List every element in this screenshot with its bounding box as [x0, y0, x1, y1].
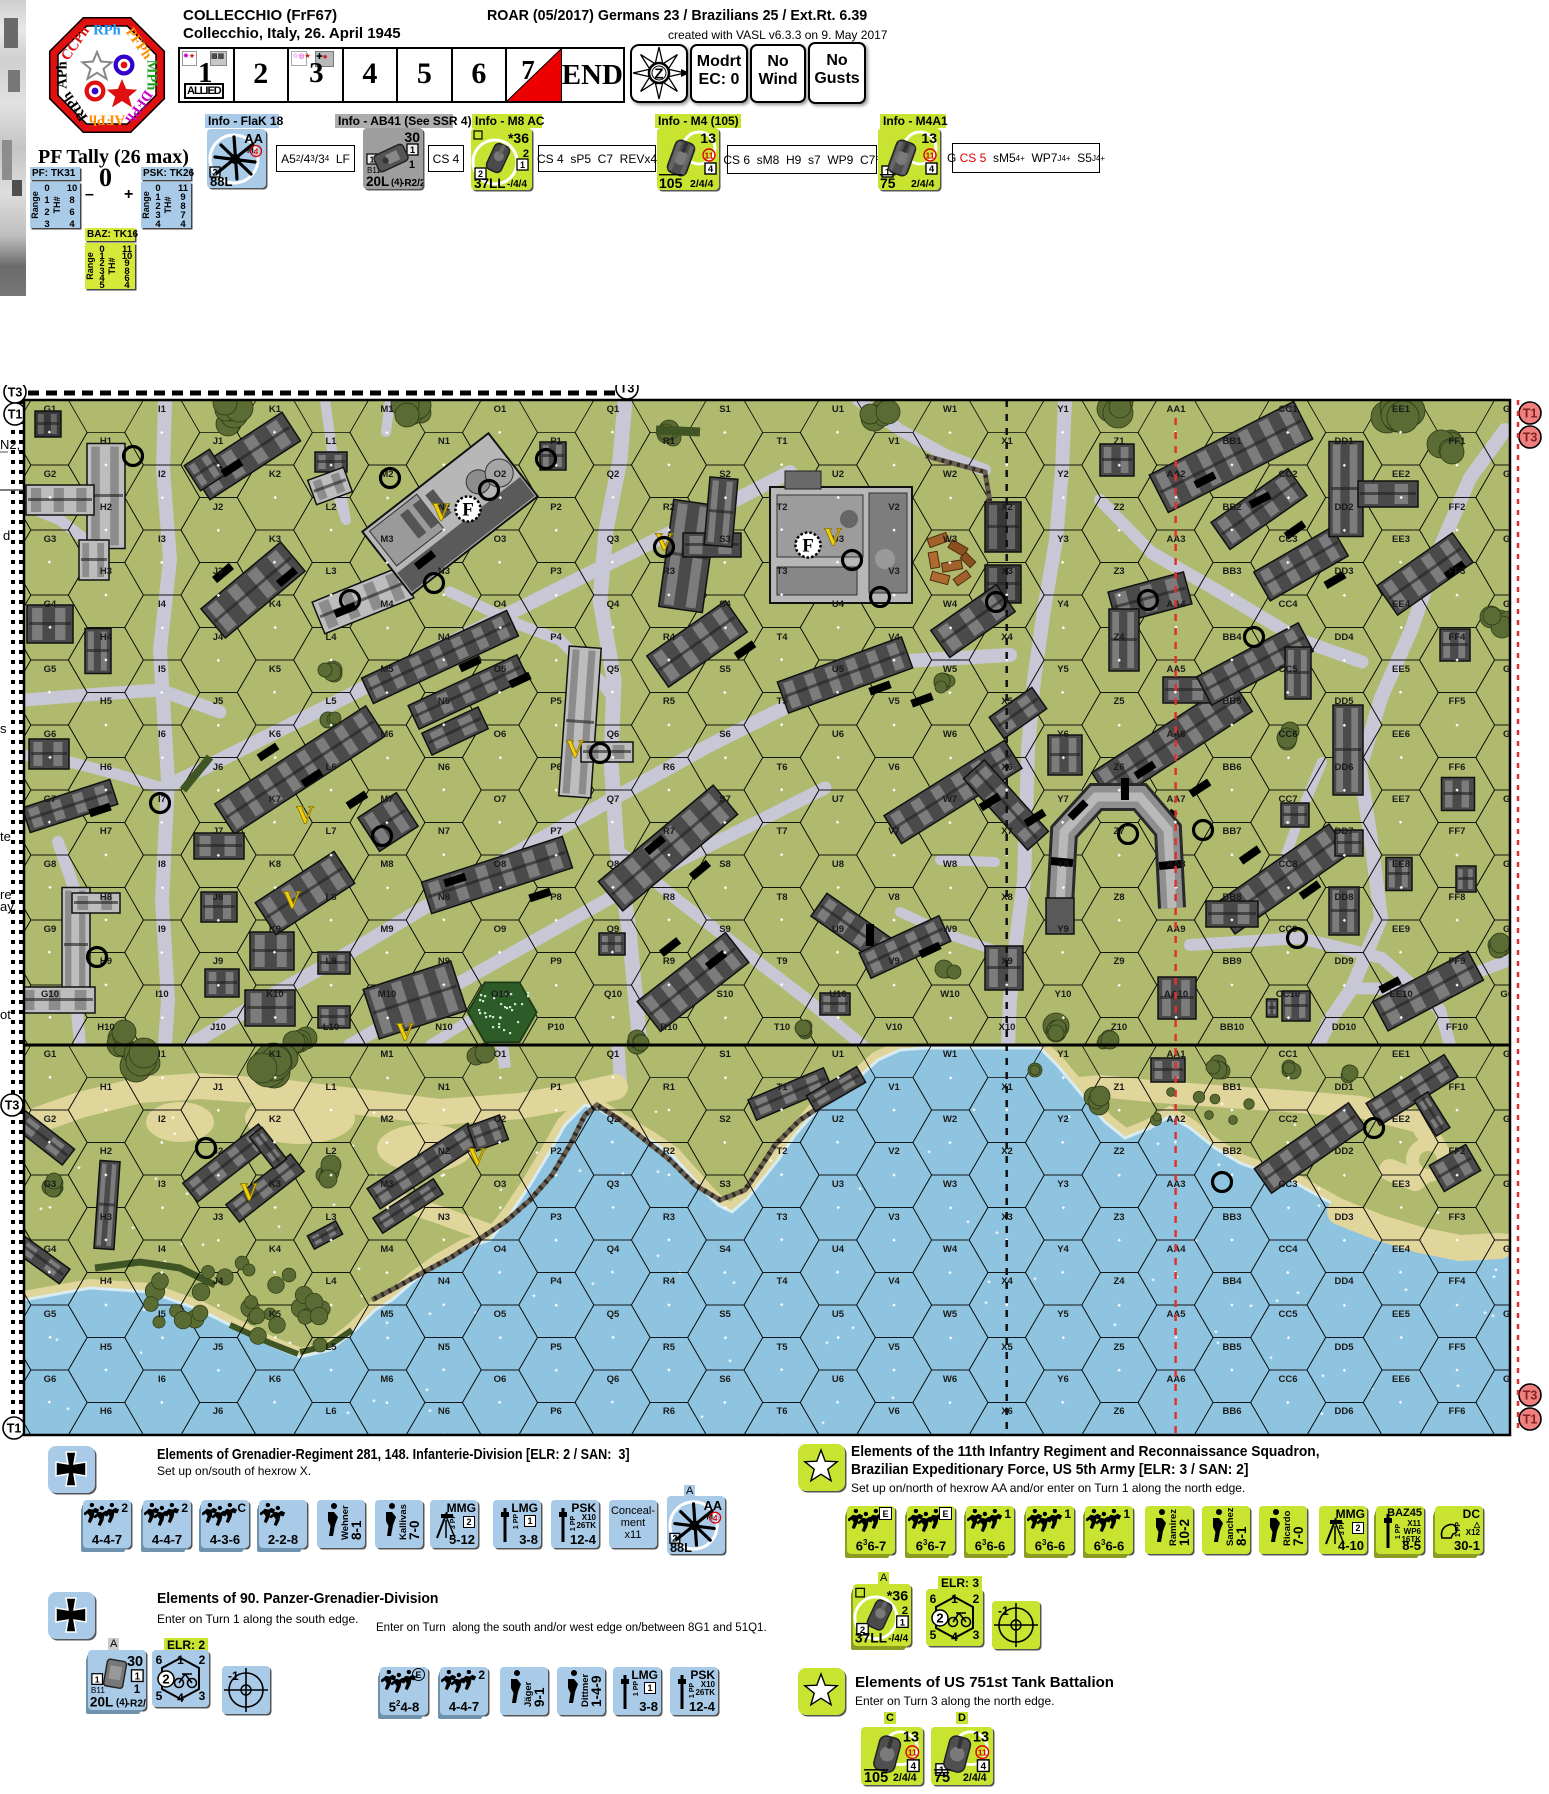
svg-text:O6: O6	[494, 1374, 507, 1385]
svg-text:S4: S4	[719, 1244, 731, 1255]
svg-text:M6: M6	[380, 1374, 393, 1385]
svg-text:S1: S1	[719, 1049, 731, 1060]
svg-text:T2: T2	[776, 502, 787, 513]
svg-text:BB6: BB6	[1222, 1406, 1241, 1417]
svg-text:DD6: DD6	[1334, 1406, 1353, 1417]
svg-text:CC3: CC3	[1278, 1179, 1297, 1190]
svg-text:P5: P5	[550, 1342, 562, 1353]
svg-text:O3: O3	[494, 1179, 507, 1190]
svg-text:M4: M4	[380, 1244, 394, 1255]
svg-text:EE10: EE10	[1389, 989, 1412, 1000]
svg-text:2/4/4: 2/4/4	[963, 1772, 987, 1784]
svg-text:W5: W5	[943, 1309, 958, 1320]
svg-text:DD9: DD9	[1334, 956, 1353, 967]
svg-text:R5: R5	[663, 696, 676, 707]
svg-text:Q8: Q8	[607, 859, 620, 870]
svg-text:Y5: Y5	[1057, 1309, 1069, 1320]
svg-text:Y10: Y10	[1055, 989, 1072, 1000]
svg-text:CC6: CC6	[1278, 1374, 1297, 1385]
svg-text:GG10: GG10	[1500, 989, 1525, 1000]
svg-text:Range: Range	[30, 191, 40, 219]
svg-text:Z1: Z1	[1113, 436, 1125, 447]
svg-text:EE6: EE6	[1392, 1374, 1410, 1385]
svg-text:S2: S2	[719, 469, 731, 480]
svg-text:BB7: BB7	[1222, 826, 1241, 837]
svg-text:K4: K4	[269, 599, 282, 610]
svg-text:V5: V5	[888, 1342, 900, 1353]
svg-text:O2: O2	[494, 1114, 507, 1125]
svg-text:CC1: CC1	[1278, 404, 1298, 415]
svg-text:P9: P9	[550, 956, 562, 967]
svg-text:G4: G4	[44, 1244, 57, 1255]
svg-text:Z3: Z3	[1113, 1212, 1124, 1223]
svg-text:2: 2	[936, 1611, 943, 1626]
svg-text:R1: R1	[663, 1082, 676, 1093]
svg-text:EE8: EE8	[1392, 859, 1410, 870]
svg-text:I1: I1	[158, 1049, 167, 1060]
svg-text:BB5: BB5	[1222, 1342, 1242, 1353]
svg-text:30: 30	[404, 129, 420, 145]
svg-text:J4: J4	[213, 1276, 224, 1287]
svg-text:FF10: FF10	[1446, 1022, 1468, 1033]
svg-text:DD2: DD2	[1334, 1146, 1353, 1157]
svg-text:G5: G5	[44, 1309, 57, 1320]
svg-text:U2: U2	[832, 1114, 844, 1125]
svg-text:G2: G2	[44, 469, 57, 480]
svg-text:J1: J1	[213, 1082, 224, 1093]
svg-text:S6: S6	[719, 1374, 731, 1385]
svg-text:2: 2	[902, 1605, 908, 1617]
svg-text:R6: R6	[663, 1406, 675, 1417]
svg-text:W6: W6	[943, 729, 957, 740]
svg-text:T1: T1	[776, 1082, 788, 1093]
svg-text:H2: H2	[100, 1146, 112, 1157]
svg-text:W2: W2	[943, 469, 957, 480]
svg-text:K1: K1	[269, 404, 282, 415]
svg-text:DD2: DD2	[1334, 502, 1353, 513]
svg-text:DD3: DD3	[1334, 1212, 1353, 1223]
svg-text:W1: W1	[943, 404, 958, 415]
svg-text:G2: G2	[44, 1114, 57, 1125]
svg-text:88L: 88L	[670, 1540, 692, 1554]
svg-text:L1: L1	[325, 436, 337, 447]
svg-text:11: 11	[978, 1748, 987, 1758]
svg-text:2/4/4: 2/4/4	[690, 178, 714, 190]
svg-text:CC2: CC2	[1278, 469, 1297, 480]
svg-text:BB4: BB4	[1222, 632, 1242, 643]
svg-text:1: 1	[409, 159, 415, 171]
svg-text:L10: L10	[323, 1022, 339, 1033]
svg-text:K2: K2	[269, 469, 281, 480]
svg-text:T3: T3	[776, 1212, 787, 1223]
svg-text:MPh: MPh	[144, 60, 160, 91]
svg-text:P4: P4	[550, 1276, 562, 1287]
svg-text:BB3: BB3	[1222, 1212, 1241, 1223]
svg-text:M3: M3	[380, 1179, 393, 1190]
svg-text:Z: Z	[654, 66, 663, 83]
svg-text:Z3: Z3	[1113, 566, 1124, 577]
svg-text:P7: P7	[550, 826, 562, 837]
svg-text:U10: U10	[829, 989, 846, 1000]
svg-text:Q7: Q7	[607, 794, 620, 805]
svg-text:CC5: CC5	[1278, 1309, 1298, 1320]
svg-text:L3: L3	[325, 566, 336, 577]
svg-text:R4: R4	[663, 1276, 676, 1287]
svg-text:DD5: DD5	[1334, 696, 1354, 707]
svg-text:Q6: Q6	[607, 729, 620, 740]
svg-text:H3: H3	[100, 1212, 112, 1223]
svg-text:Z4: Z4	[1113, 632, 1125, 643]
svg-text:Y4: Y4	[1057, 1244, 1069, 1255]
svg-text:V5: V5	[888, 696, 900, 707]
svg-text:1: 1	[44, 195, 50, 206]
svg-text:S10: S10	[717, 989, 734, 1000]
svg-text:4: 4	[708, 164, 714, 175]
svg-text:37LL: 37LL	[855, 1631, 887, 1646]
svg-text:FF6: FF6	[1449, 1406, 1466, 1417]
svg-text:2: 2	[199, 1653, 206, 1667]
svg-text:3: 3	[199, 1689, 206, 1703]
svg-text:N7: N7	[438, 826, 450, 837]
svg-text:I3: I3	[158, 1179, 166, 1190]
svg-text:Z1: Z1	[1113, 1082, 1125, 1093]
svg-text:K4: K4	[269, 1244, 282, 1255]
svg-text:W8: W8	[943, 859, 957, 870]
svg-text:Z9: Z9	[1113, 956, 1124, 967]
svg-text:6: 6	[69, 207, 74, 218]
svg-text:M3: M3	[380, 534, 393, 545]
svg-text:FF7: FF7	[1449, 826, 1466, 837]
svg-text:6: 6	[156, 1653, 163, 1667]
svg-text:CC10: CC10	[1276, 989, 1300, 1000]
svg-text:P3: P3	[550, 1212, 562, 1223]
svg-text:J5: J5	[213, 696, 224, 707]
svg-text:Q5: Q5	[607, 1309, 620, 1320]
svg-text:8: 8	[69, 195, 74, 206]
svg-text:Q5: Q5	[607, 664, 620, 675]
svg-text:5: 5	[930, 1628, 937, 1642]
svg-text:R10: R10	[660, 1022, 677, 1033]
svg-text:P3: P3	[550, 566, 562, 577]
svg-text:1: 1	[95, 1674, 100, 1684]
svg-text:BB10: BB10	[1220, 1022, 1244, 1033]
svg-text:AA: AA	[704, 1498, 722, 1513]
svg-text:EE1: EE1	[1392, 1049, 1411, 1060]
svg-text:T10: T10	[774, 1022, 790, 1033]
svg-text:I6: I6	[158, 1374, 166, 1385]
svg-text:K6: K6	[269, 729, 281, 740]
svg-text:S5: S5	[719, 664, 731, 675]
svg-text:4: 4	[910, 1762, 916, 1773]
svg-text:1: 1	[410, 145, 415, 155]
svg-text:J5: J5	[213, 1342, 224, 1353]
svg-text:J2: J2	[213, 502, 224, 513]
svg-text:Q1: Q1	[607, 404, 620, 415]
svg-text:GG5: GG5	[1503, 1309, 1524, 1320]
svg-text:1: 1	[900, 1617, 906, 1628]
svg-text:T1: T1	[776, 436, 788, 447]
svg-text:GG6: GG6	[1503, 729, 1523, 740]
svg-text:G5: G5	[44, 664, 57, 675]
svg-text:CC1: CC1	[1278, 1049, 1298, 1060]
svg-text:J3: J3	[213, 566, 224, 577]
svg-text:R4: R4	[663, 632, 676, 643]
svg-text:V6: V6	[888, 1406, 900, 1417]
svg-text:Q2: Q2	[607, 469, 620, 480]
svg-text:I8: I8	[158, 859, 166, 870]
svg-text:13: 13	[700, 130, 716, 146]
svg-text:DD5: DD5	[1334, 1342, 1354, 1353]
svg-text:1: 1	[134, 1683, 141, 1696]
svg-text:1: 1	[951, 1592, 958, 1606]
svg-text:Y1: Y1	[1057, 1049, 1069, 1060]
svg-text:Range: Range	[85, 252, 95, 280]
svg-text:G6: G6	[44, 1374, 57, 1385]
svg-text:H7: H7	[100, 826, 112, 837]
svg-text:W4: W4	[943, 599, 958, 610]
svg-text:T2: T2	[776, 1146, 787, 1157]
svg-text:Y9: Y9	[1057, 924, 1069, 935]
svg-text:te: te	[0, 829, 11, 844]
svg-text:Z4: Z4	[1113, 1276, 1125, 1287]
svg-text:S1: S1	[719, 404, 731, 415]
svg-text:H10: H10	[97, 1022, 114, 1033]
svg-text:10: 10	[67, 183, 78, 194]
svg-text:APh: APh	[54, 61, 70, 88]
svg-text:T4: T4	[776, 1276, 788, 1287]
svg-text:N2,: N2,	[0, 437, 20, 452]
svg-text:Q2: Q2	[607, 1114, 620, 1125]
svg-text:U2: U2	[832, 469, 844, 480]
svg-text:S6: S6	[719, 729, 731, 740]
svg-text:W2: W2	[943, 1114, 957, 1125]
svg-text:RPh: RPh	[93, 22, 120, 38]
svg-text:P8: P8	[550, 892, 562, 903]
svg-text:F: F	[802, 536, 814, 557]
svg-text:P6: P6	[550, 762, 562, 773]
svg-text:BB4: BB4	[1222, 1276, 1242, 1287]
svg-text:L8: L8	[325, 892, 336, 903]
svg-text:G9: G9	[44, 924, 57, 935]
svg-text:J4: J4	[213, 632, 224, 643]
svg-text:Y3: Y3	[1057, 534, 1069, 545]
svg-text:V4: V4	[888, 1276, 900, 1287]
svg-text:DD1: DD1	[1334, 1082, 1354, 1093]
svg-text:H4: H4	[100, 1276, 113, 1287]
svg-text:J6: J6	[213, 1406, 224, 1417]
svg-text:*36: *36	[508, 130, 529, 146]
svg-text:V1: V1	[888, 436, 900, 447]
svg-text:U4: U4	[832, 599, 845, 610]
svg-text:10-2: 10-2	[1177, 1519, 1192, 1546]
svg-text:U6: U6	[832, 1374, 844, 1385]
svg-text:S2: S2	[719, 1114, 731, 1125]
svg-text:W9: W9	[943, 924, 957, 935]
svg-text:EE5: EE5	[1392, 664, 1411, 675]
svg-text:T4: T4	[776, 632, 788, 643]
svg-text:T3: T3	[8, 386, 23, 400]
svg-text:R1: R1	[663, 436, 676, 447]
svg-text:N1: N1	[438, 1082, 451, 1093]
svg-text:9-1: 9-1	[532, 1687, 547, 1707]
svg-text:V: V	[566, 736, 584, 763]
svg-text:V6: V6	[888, 762, 900, 773]
svg-text:V: V	[396, 1019, 414, 1046]
svg-text:I4: I4	[158, 1244, 167, 1255]
svg-text:2: 2	[44, 207, 49, 218]
svg-text:U1: U1	[832, 404, 845, 415]
svg-text:-1: -1	[228, 1669, 239, 1683]
svg-text:U5: U5	[832, 1309, 845, 1320]
svg-text:K5: K5	[269, 1309, 282, 1320]
svg-text:Z8: Z8	[1113, 892, 1124, 903]
svg-text:*36: *36	[887, 1589, 908, 1605]
svg-text:d: d	[3, 528, 10, 543]
svg-text:G4: G4	[44, 599, 57, 610]
svg-text:R3: R3	[663, 1212, 675, 1223]
svg-text:P4: P4	[550, 632, 562, 643]
svg-text:V: V	[296, 802, 314, 829]
svg-text:O5: O5	[494, 1309, 507, 1320]
svg-text:V3: V3	[888, 566, 900, 577]
svg-text:TH#: TH#	[52, 196, 62, 213]
svg-text:V: V	[824, 524, 842, 551]
svg-text:R2: R2	[663, 1146, 675, 1157]
svg-text:T1: T1	[1523, 1413, 1538, 1427]
svg-text:Y4: Y4	[1057, 599, 1069, 610]
svg-text:M10: M10	[378, 989, 396, 1000]
svg-text:4: 4	[155, 219, 161, 228]
svg-text:O9: O9	[494, 924, 507, 935]
svg-text:1: 1	[177, 1653, 184, 1667]
svg-text:EE2: EE2	[1392, 469, 1410, 480]
svg-text:T3: T3	[1523, 1389, 1538, 1403]
svg-text:7-0: 7-0	[1291, 1526, 1306, 1546]
svg-text:W4: W4	[943, 1244, 958, 1255]
svg-text:FF3: FF3	[1449, 1212, 1466, 1223]
svg-text:U7: U7	[832, 794, 844, 805]
svg-text:T1: T1	[8, 408, 23, 422]
svg-text:H4: H4	[100, 632, 113, 643]
svg-text:V10: V10	[886, 1022, 903, 1033]
svg-text:V2: V2	[888, 1146, 900, 1157]
svg-text:N8: N8	[438, 892, 450, 903]
svg-text:FF4: FF4	[1449, 632, 1467, 643]
svg-text:U6: U6	[832, 729, 844, 740]
svg-text:P5: P5	[550, 696, 562, 707]
svg-text:G1: G1	[44, 404, 57, 415]
svg-text:FF2: FF2	[1449, 1146, 1466, 1157]
svg-text:3: 3	[973, 1628, 980, 1642]
svg-text:Y2: Y2	[1057, 469, 1069, 480]
svg-text:CC3: CC3	[1278, 534, 1297, 545]
svg-text:I5: I5	[158, 664, 167, 675]
svg-text:I2: I2	[158, 469, 166, 480]
svg-text:N4: N4	[438, 1276, 451, 1287]
svg-text:M1: M1	[380, 404, 394, 415]
svg-text:Q10: Q10	[604, 989, 622, 1000]
svg-text:S9: S9	[719, 924, 731, 935]
svg-text:R6: R6	[663, 762, 675, 773]
svg-text:O4: O4	[494, 599, 507, 610]
svg-text:J10: J10	[210, 1022, 226, 1033]
svg-text:R3: R3	[663, 566, 675, 577]
svg-text:GG9: GG9	[1503, 924, 1523, 935]
svg-text:EE7: EE7	[1392, 794, 1410, 805]
svg-text:V1: V1	[888, 1082, 900, 1093]
svg-text:T6: T6	[776, 762, 787, 773]
svg-text:20L: 20L	[366, 174, 389, 189]
svg-text:T9: T9	[776, 956, 787, 967]
svg-text:H6: H6	[100, 1406, 112, 1417]
svg-text:N5: N5	[438, 1342, 451, 1353]
svg-text:Y3: Y3	[1057, 1179, 1069, 1190]
svg-text:CC5: CC5	[1278, 664, 1298, 675]
svg-text:H5: H5	[100, 696, 113, 707]
svg-text:K1: K1	[269, 1049, 282, 1060]
svg-text:G3: G3	[44, 1179, 57, 1190]
svg-text:N5: N5	[438, 696, 451, 707]
svg-text:FF9: FF9	[1449, 956, 1466, 967]
svg-text:2: 2	[973, 1592, 980, 1606]
svg-text:L2: L2	[325, 502, 336, 513]
svg-text:37LL: 37LL	[474, 176, 506, 190]
svg-text:EE3: EE3	[1392, 1179, 1410, 1190]
svg-text:J1: J1	[213, 436, 224, 447]
svg-text:Z10: Z10	[1111, 1022, 1127, 1033]
svg-text:CC2: CC2	[1278, 1114, 1297, 1125]
svg-text:I3: I3	[158, 534, 166, 545]
svg-text:FF5: FF5	[1449, 696, 1467, 707]
svg-text:P10: P10	[548, 1022, 565, 1033]
svg-text:H8: H8	[100, 892, 112, 903]
svg-text:W3: W3	[943, 534, 957, 545]
svg-text:V3: V3	[888, 1212, 900, 1223]
svg-text:M6: M6	[380, 729, 393, 740]
svg-text:W7: W7	[943, 794, 957, 805]
svg-text:7-0: 7-0	[407, 1520, 422, 1540]
svg-text:BB5: BB5	[1222, 696, 1242, 707]
svg-text:FF1: FF1	[1449, 1082, 1467, 1093]
svg-text:6: 6	[930, 1592, 937, 1606]
svg-text:2: 2	[523, 148, 529, 160]
svg-text:U8: U8	[832, 859, 844, 870]
svg-text:Q1: Q1	[607, 1049, 620, 1060]
svg-text:O10: O10	[491, 989, 509, 1000]
svg-text:Q3: Q3	[607, 1179, 620, 1190]
svg-text:L3: L3	[325, 1212, 336, 1223]
svg-text:G10: G10	[41, 989, 59, 1000]
svg-text:T5: T5	[776, 696, 788, 707]
svg-text:S3: S3	[719, 1179, 731, 1190]
svg-text:BB3: BB3	[1222, 566, 1241, 577]
svg-text:L5: L5	[325, 1342, 337, 1353]
svg-text:U5: U5	[832, 664, 845, 675]
svg-text:2/4/4: 2/4/4	[893, 1772, 917, 1784]
svg-text:K5: K5	[269, 664, 282, 675]
svg-text:105: 105	[659, 175, 683, 190]
svg-text:W10: W10	[940, 989, 960, 1000]
svg-text:T3: T3	[1523, 431, 1538, 445]
svg-text:Y8: Y8	[1057, 859, 1069, 870]
svg-text:BB2: BB2	[1222, 502, 1241, 513]
svg-text:F: F	[462, 500, 474, 521]
svg-text:13: 13	[973, 1730, 989, 1746]
svg-text:T3: T3	[5, 1099, 20, 1113]
svg-text:GG5: GG5	[1503, 664, 1524, 675]
svg-text:O5: O5	[494, 664, 507, 675]
svg-text:Y7: Y7	[1057, 794, 1069, 805]
